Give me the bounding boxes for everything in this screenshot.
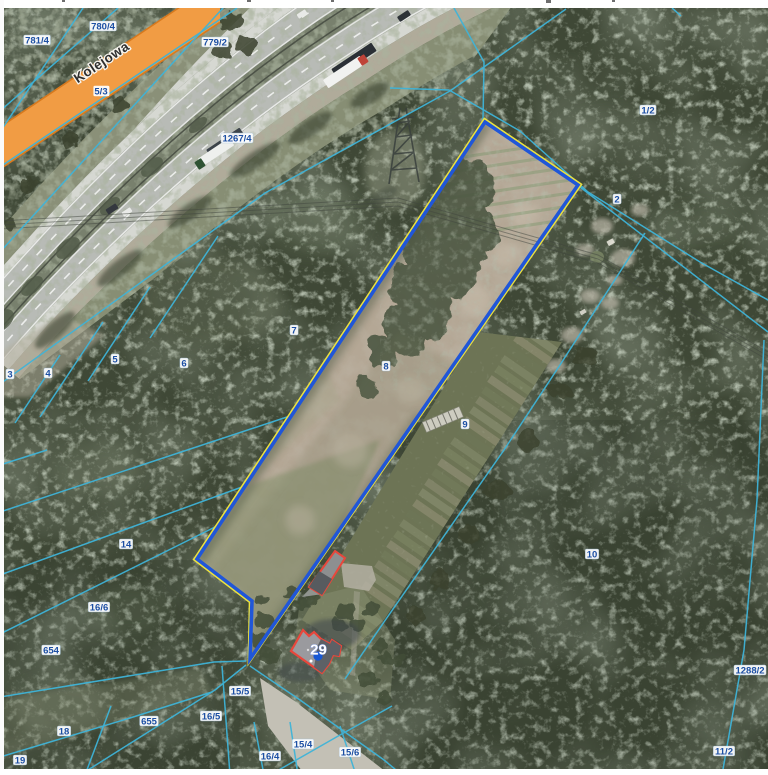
svg-text:15/6: 15/6 [341, 747, 360, 758]
svg-text:3: 3 [7, 369, 12, 380]
svg-text:780/4: 780/4 [91, 21, 115, 32]
svg-text:4: 4 [45, 368, 51, 379]
svg-text:16/6: 16/6 [90, 602, 109, 613]
svg-text:2: 2 [614, 194, 619, 205]
svg-text:14: 14 [121, 539, 132, 550]
svg-text:18: 18 [59, 726, 70, 737]
svg-text:5: 5 [112, 354, 118, 365]
svg-text:16/5: 16/5 [202, 711, 221, 722]
svg-text:1267/4: 1267/4 [222, 133, 252, 144]
svg-text:1/2: 1/2 [641, 105, 654, 116]
svg-text:15/4: 15/4 [294, 739, 313, 750]
svg-text:7: 7 [291, 325, 296, 336]
svg-text:15/5: 15/5 [231, 686, 250, 697]
svg-text:10: 10 [587, 549, 598, 560]
svg-text:779/2: 779/2 [203, 37, 227, 48]
svg-text:6: 6 [181, 358, 186, 369]
svg-text:29: 29 [310, 642, 327, 659]
svg-text:8: 8 [383, 361, 388, 372]
svg-text:19: 19 [15, 755, 26, 766]
svg-text:781/4: 781/4 [25, 35, 49, 46]
svg-text:11/2: 11/2 [715, 746, 733, 757]
svg-text:655: 655 [141, 716, 158, 727]
svg-text:9: 9 [462, 419, 467, 430]
svg-text:16/4: 16/4 [261, 751, 280, 762]
svg-text:5/3: 5/3 [94, 86, 107, 97]
svg-text:654: 654 [43, 645, 60, 656]
svg-text:1288/2: 1288/2 [735, 665, 764, 676]
